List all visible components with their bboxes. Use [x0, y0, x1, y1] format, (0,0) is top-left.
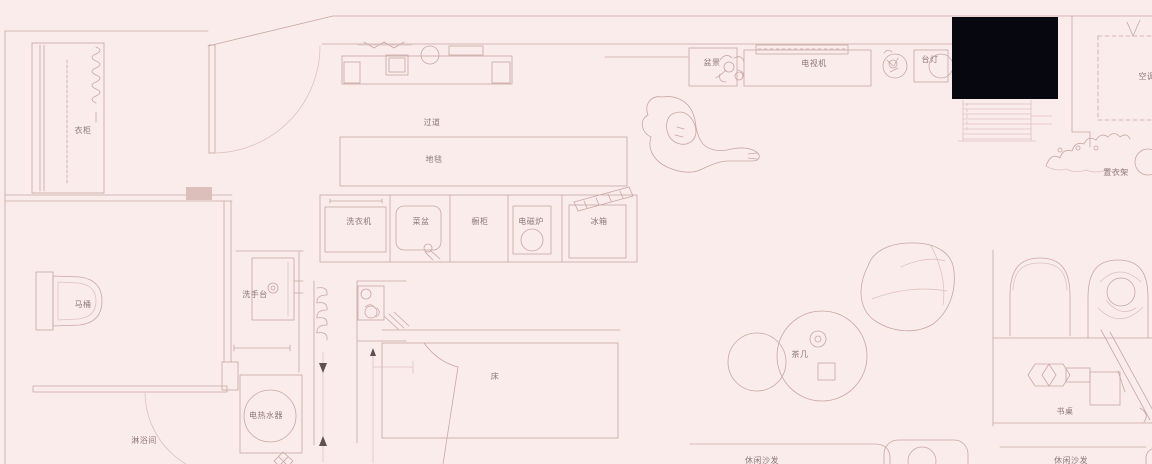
label-desk: 书桌 — [1057, 408, 1074, 416]
carpet-rect — [340, 137, 627, 186]
air-conditioner-zone — [1098, 20, 1152, 120]
fridge-box — [569, 205, 626, 258]
bed-drawing — [370, 330, 620, 464]
wash-basin-fixture — [234, 258, 303, 351]
hangers — [92, 47, 100, 103]
dimension-line — [373, 350, 413, 463]
bonsai-planter — [689, 48, 744, 86]
label-shower-room: 淋浴间 — [131, 437, 157, 445]
label-tea-table: 茶几 — [792, 351, 809, 359]
label-bed: 床 — [491, 373, 500, 381]
label-vegetable-sink: 菜盆 — [413, 218, 430, 226]
label-carpet: 地毯 — [426, 156, 443, 164]
direction-arrows — [319, 352, 327, 462]
label-clothes-rack: 置衣架 — [1103, 169, 1129, 177]
label-water-heater: 电热水器 — [249, 412, 283, 420]
label-table-lamp: 台灯 — [922, 56, 939, 64]
label-induction-cooker: 电磁炉 — [518, 218, 544, 226]
hallway-coat-hooks — [317, 288, 327, 340]
label-toilet: 马桶 — [75, 301, 92, 309]
fridge-door-open — [574, 187, 633, 211]
plant-pot-icon — [883, 50, 907, 78]
washing-machine-box — [325, 207, 386, 252]
bean-bag — [861, 243, 954, 331]
floor-drain-icon — [274, 452, 293, 464]
leisure-chairs — [884, 440, 1152, 464]
label-leisure-sofa-left: 休闲沙发 — [745, 457, 779, 464]
cooker-box — [513, 206, 551, 254]
person-figure — [642, 97, 759, 173]
label-wash-basin: 洗手台 — [242, 291, 268, 299]
label-corridor: 过道 — [424, 119, 441, 127]
ladder-shelf — [958, 100, 1052, 141]
blacked-out-area — [952, 17, 1058, 99]
label-tv: 电视机 — [801, 60, 827, 68]
label-leisure-sofa-right: 休闲沙发 — [1054, 457, 1088, 464]
desk-area — [1010, 258, 1152, 422]
dimension-line — [234, 345, 290, 351]
floor-plan-linework — [0, 0, 1152, 464]
chair — [1010, 258, 1070, 336]
sink-basin — [396, 206, 441, 250]
label-fridge: 冰箱 — [591, 218, 608, 226]
label-potted-landscape: 盆景 — [704, 59, 721, 67]
wardrobe-cabinet — [32, 43, 104, 193]
floor-plan: 衣柜 过道 地毯 洗衣机 菜盆 橱柜 电磁炉 冰箱 马桶 洗手台 淋浴间 电热水… — [0, 0, 1152, 464]
arrow-down-icon — [319, 363, 327, 373]
clothes-rack-drawing — [1046, 134, 1152, 176]
entry-console — [342, 42, 512, 84]
label-wardrobe: 衣柜 — [75, 127, 92, 135]
toilet-fixture — [36, 272, 102, 330]
arrow-up-icon — [319, 436, 327, 446]
utility-fixture — [358, 286, 409, 341]
blanket-fold — [424, 343, 458, 464]
label-washing-machine: 洗衣机 — [346, 218, 372, 226]
label-air-conditioner: 空调 — [1139, 73, 1152, 81]
label-cupboard: 橱柜 — [472, 218, 489, 226]
